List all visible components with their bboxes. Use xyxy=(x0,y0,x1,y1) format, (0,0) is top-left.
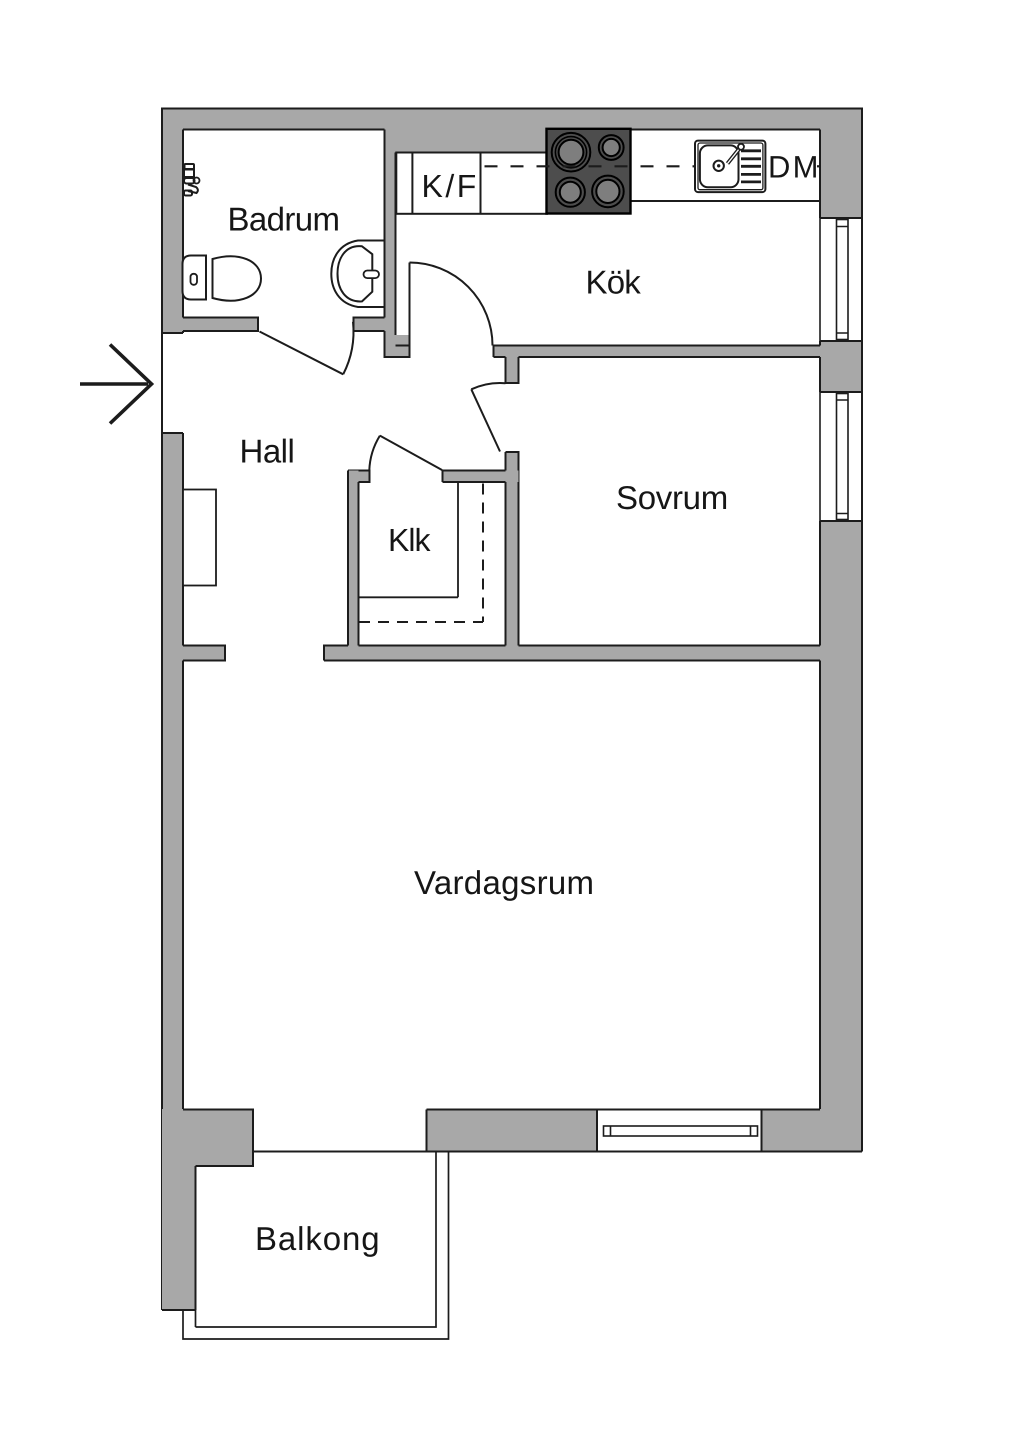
svg-text:Hall: Hall xyxy=(240,433,295,470)
svg-text:Badrum: Badrum xyxy=(228,201,340,238)
svg-text:Sovrum: Sovrum xyxy=(616,479,728,516)
svg-text:DM: DM xyxy=(768,150,821,185)
svg-text:Kök: Kök xyxy=(586,264,642,301)
svg-text:Klk: Klk xyxy=(388,522,431,558)
svg-text:Balkong: Balkong xyxy=(255,1220,381,1257)
svg-text:Vardagsrum: Vardagsrum xyxy=(414,864,594,901)
svg-text:K/F: K/F xyxy=(422,168,479,204)
